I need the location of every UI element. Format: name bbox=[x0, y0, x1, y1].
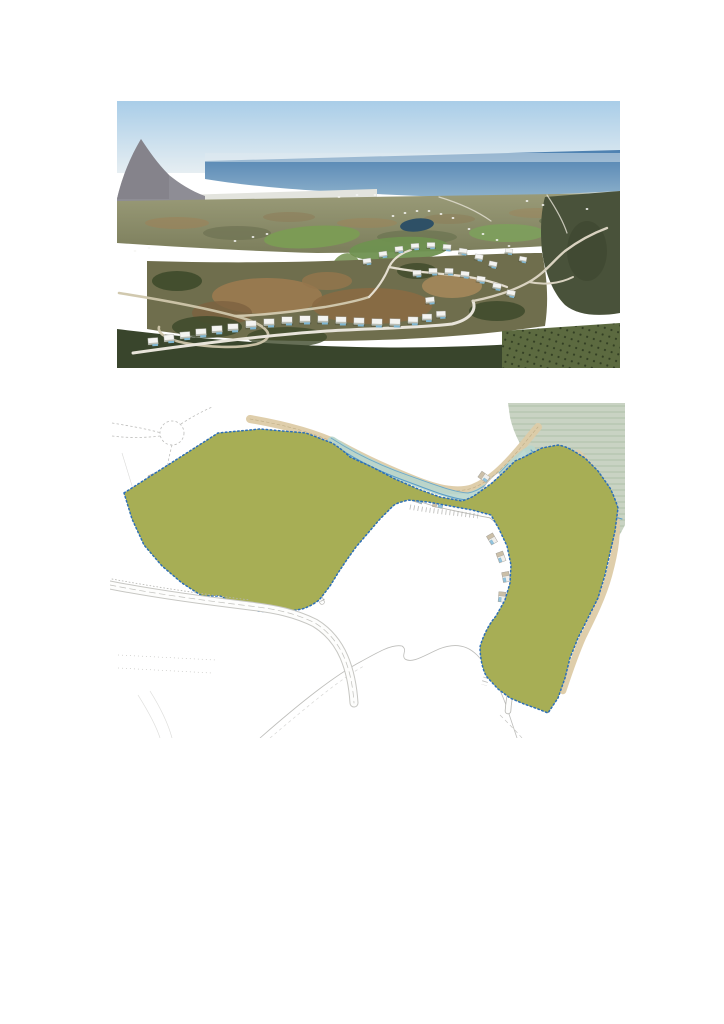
photo-foreground-hillside bbox=[147, 253, 547, 347]
aerial-photo bbox=[117, 101, 620, 368]
photo-sea bbox=[205, 150, 620, 199]
document-page bbox=[0, 0, 724, 1024]
photo-right-hill bbox=[541, 191, 620, 315]
site-plan bbox=[110, 403, 625, 738]
